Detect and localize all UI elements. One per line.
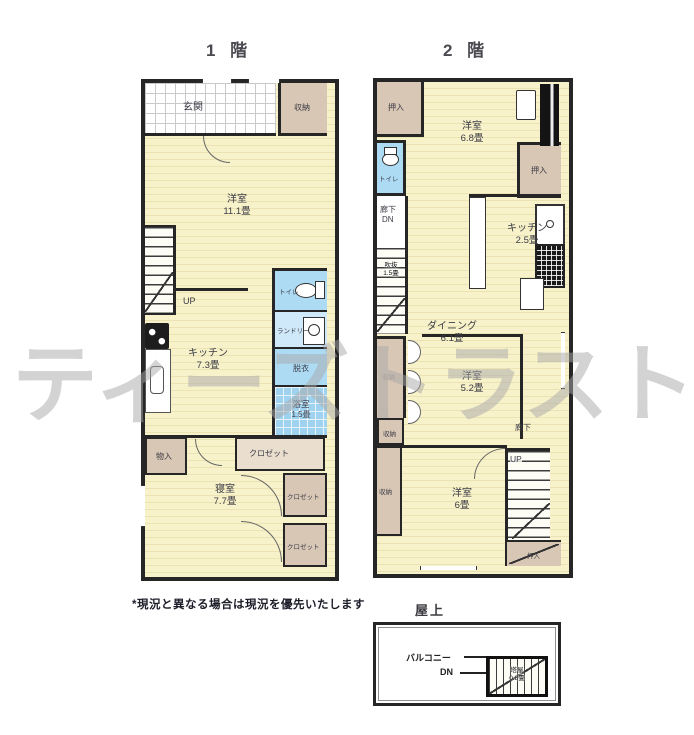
bedroom-size: 7.7畳 bbox=[185, 496, 265, 508]
room52-name: 洋室 bbox=[437, 370, 507, 383]
room52-label-wrap: 洋室 5.2畳 bbox=[437, 370, 507, 395]
kitchen-name-1f: キッチン bbox=[173, 347, 243, 360]
dining-label-wrap: ダイニング 6.1畳 bbox=[407, 320, 497, 345]
stairs-1f bbox=[145, 225, 176, 315]
room68-name: 洋室 bbox=[437, 120, 507, 133]
room6-name: 洋室 bbox=[427, 487, 497, 500]
window-mark-1f-left bbox=[141, 485, 145, 527]
toilet-room-1f: トイレ bbox=[272, 268, 327, 310]
kitchen-label-2f: キッチン 2.5畳 bbox=[495, 222, 559, 247]
closet-tl-2f: 押入 bbox=[377, 82, 424, 137]
closet-bottom-1f: クロゼット bbox=[283, 523, 327, 567]
kitchen-size-2f: 2.5畳 bbox=[495, 235, 559, 247]
closet-right-label: 押入 bbox=[531, 165, 547, 176]
tower-label-wrap: 塔屋 0.8畳 bbox=[489, 667, 545, 683]
closet-br-2f: 押入 bbox=[505, 540, 561, 566]
room68-label-wrap: 洋室 6.8畳 bbox=[437, 120, 507, 145]
kitchen-counter-2f bbox=[469, 197, 486, 289]
storage-small-2f: 収納 bbox=[377, 418, 404, 445]
toilet-label-1f: トイレ bbox=[279, 286, 299, 296]
bath-name: 浴室 bbox=[275, 399, 327, 410]
kitchen-label-1f: キッチン 7.3畳 bbox=[173, 347, 243, 372]
storage-mid-label: 収納 bbox=[382, 371, 395, 381]
dn-leader-line bbox=[460, 672, 486, 674]
dressing-label: 脱衣 bbox=[293, 363, 309, 374]
window-mark-1f-top-1 bbox=[202, 79, 232, 83]
closet-mid-1f: クロゼット bbox=[283, 473, 327, 517]
toilet-tank-icon bbox=[315, 281, 325, 299]
closet-bottom-label: クロゼット bbox=[287, 541, 320, 551]
entrance-label: 玄関 bbox=[183, 101, 203, 114]
hall-label-right: 廊下 bbox=[515, 422, 531, 433]
storage-bottom-2f: 収納 bbox=[377, 448, 402, 536]
storage-small-label: 物入 bbox=[156, 451, 172, 462]
closet-tl-label: 押入 bbox=[388, 102, 404, 113]
living-room-size: 11.1畳 bbox=[197, 206, 277, 218]
roof-dn-label: DN bbox=[440, 667, 453, 677]
bedroom-door-arc bbox=[195, 439, 222, 466]
folding-door-icon bbox=[408, 340, 421, 424]
equipment-box-2f bbox=[520, 278, 544, 310]
stairs-2f-left-diagonal bbox=[377, 298, 405, 332]
hall-dn-text: DN bbox=[382, 215, 394, 224]
closet-fan-arc-2 bbox=[241, 521, 282, 562]
kitchen-counter-1f bbox=[145, 349, 171, 413]
tower-size: 0.8畳 bbox=[489, 675, 545, 683]
closet-br-label: 押入 bbox=[527, 550, 540, 560]
storage-small-label-2f: 収納 bbox=[383, 428, 396, 438]
floorplan-sheet: 1 階 2 階 玄関 収納 洋室 11.1畳 UP キッチン 7.3畳 bbox=[0, 0, 694, 735]
equipment-box-icon bbox=[516, 90, 536, 120]
bath-size: 1.5畳 bbox=[275, 410, 327, 420]
bedroom-name: 寝室 bbox=[185, 483, 265, 496]
balcony-label: バルコニー bbox=[406, 651, 451, 664]
stairs-2f-left: 吹抜 1.5畳 bbox=[377, 248, 408, 334]
window-mark-2f-bottom bbox=[420, 566, 477, 570]
hall-dn-2f: 廊下 DN bbox=[377, 196, 408, 248]
room52-size: 5.2畳 bbox=[437, 383, 507, 395]
stairs-2f-right-diagonal bbox=[512, 503, 550, 539]
kitchen-name-2f: キッチン bbox=[495, 222, 559, 235]
stairs-1f-diagonal bbox=[145, 272, 173, 312]
void-label-wrap: 吹抜 1.5畳 bbox=[377, 262, 405, 278]
room6-door-arc bbox=[474, 448, 505, 479]
entrance-area: 玄関 bbox=[145, 83, 276, 136]
toilet-label-2f: トイレ bbox=[379, 173, 399, 183]
room68-size: 6.8畳 bbox=[437, 133, 507, 145]
living-room-label-1f: 洋室 11.1畳 bbox=[197, 193, 277, 218]
living-room-name: 洋室 bbox=[197, 193, 277, 206]
balcony-leader-line bbox=[464, 656, 486, 658]
window-mark-1f-top-2 bbox=[248, 79, 280, 83]
toilet-room-2f: トイレ bbox=[377, 140, 406, 196]
toilet-tank-icon-2f bbox=[384, 147, 397, 155]
kitchen-partition-wall bbox=[176, 288, 248, 291]
closet-top-label: クロゼット bbox=[249, 448, 289, 459]
void-size: 1.5畳 bbox=[377, 270, 405, 278]
roof-stairbox: 塔屋 0.8畳 bbox=[486, 656, 548, 697]
stairs-up-label-2f: UP bbox=[510, 454, 522, 464]
kitchen-size-1f: 7.3畳 bbox=[173, 360, 243, 372]
room6-top-wall bbox=[377, 445, 507, 448]
storage-top-label: 収納 bbox=[294, 102, 310, 113]
room6-label-wrap: 洋室 6畳 bbox=[427, 487, 497, 512]
disclaimer-note: *現況と異なる場合は現況を優先いたします bbox=[132, 596, 365, 612]
void-name: 吹抜 bbox=[377, 262, 405, 270]
floor1-plan: 玄関 収納 洋室 11.1畳 UP キッチン 7.3畳 bbox=[141, 79, 339, 581]
laundry-label: ランドリー bbox=[277, 325, 310, 335]
floor2-plan: 押入 洋室 6.8畳 押入 トイレ 廊下 DN 吹抜 1.5畳 bbox=[373, 78, 573, 578]
fold-leaf-3 bbox=[408, 400, 421, 424]
fold-leaf-2 bbox=[408, 370, 421, 394]
stairs-up-label-1f: UP bbox=[183, 296, 196, 306]
roof-title: 屋上 bbox=[415, 600, 445, 619]
room6-size: 6畳 bbox=[427, 500, 497, 512]
floor2-title: 2 階 bbox=[443, 36, 489, 61]
bath-label-wrap: 浴室 1.5畳 bbox=[275, 399, 327, 420]
hall-label-2f: 廊下 bbox=[380, 204, 396, 215]
laundry-room-1f: ランドリー bbox=[272, 310, 327, 347]
bath-room-1f: 浴室 1.5畳 bbox=[272, 385, 327, 438]
bedroom-label-wrap: 寝室 7.7畳 bbox=[185, 483, 265, 508]
storage-mid-2f: 収納 bbox=[377, 336, 406, 418]
watermark-text: ティーズトラスト bbox=[12, 314, 694, 439]
dressing-room-1f: 脱衣 bbox=[272, 347, 327, 385]
sink-icon bbox=[150, 366, 164, 394]
entrance-door-arc bbox=[203, 136, 230, 163]
dining-size: 6.1畳 bbox=[407, 333, 497, 345]
floor1-title: 1 階 bbox=[206, 36, 252, 61]
dark-panel-icon bbox=[540, 84, 559, 146]
storage-small-1f: 物入 bbox=[145, 437, 187, 475]
dining-name: ダイニング bbox=[407, 320, 497, 333]
stove-icon bbox=[145, 323, 169, 349]
closet-top-1f: クロゼット bbox=[235, 437, 325, 471]
tower-name: 塔屋 bbox=[489, 667, 545, 675]
window-mark-2f-right bbox=[561, 332, 565, 389]
storage-top-1f: 収納 bbox=[278, 83, 327, 136]
storage-bottom-label: 収納 bbox=[379, 486, 392, 496]
closet-mid-label: クロゼット bbox=[287, 491, 320, 501]
roof-plan: バルコニー DN 塔屋 0.8畳 bbox=[373, 622, 561, 706]
closet-right-2f: 押入 bbox=[517, 142, 561, 198]
